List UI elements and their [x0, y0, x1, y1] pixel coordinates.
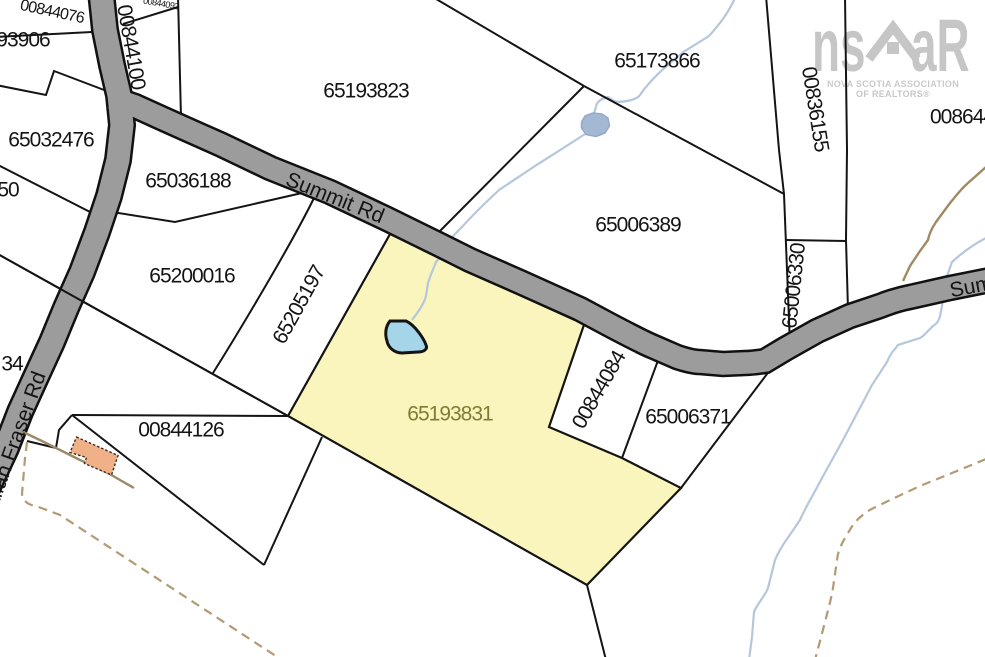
- svg-text:65193831: 65193831: [407, 403, 493, 426]
- svg-text:65173866: 65173866: [614, 50, 700, 73]
- svg-text:65006371: 65006371: [645, 406, 731, 429]
- svg-text:65193823: 65193823: [323, 80, 409, 103]
- svg-text:65036188: 65036188: [145, 170, 231, 193]
- svg-text:aR: aR: [911, 5, 970, 88]
- svg-text:65006389: 65006389: [595, 214, 681, 237]
- svg-text:00864463: 00864463: [930, 106, 985, 129]
- svg-text:50: 50: [0, 179, 19, 202]
- svg-text:93906: 93906: [0, 29, 50, 52]
- svg-text:00844126: 00844126: [138, 419, 224, 442]
- svg-text:34: 34: [1, 353, 24, 376]
- svg-text:65032476: 65032476: [8, 129, 94, 152]
- svg-text:OF REALTORS®: OF REALTORS®: [856, 89, 930, 99]
- svg-text:65200016: 65200016: [149, 265, 235, 288]
